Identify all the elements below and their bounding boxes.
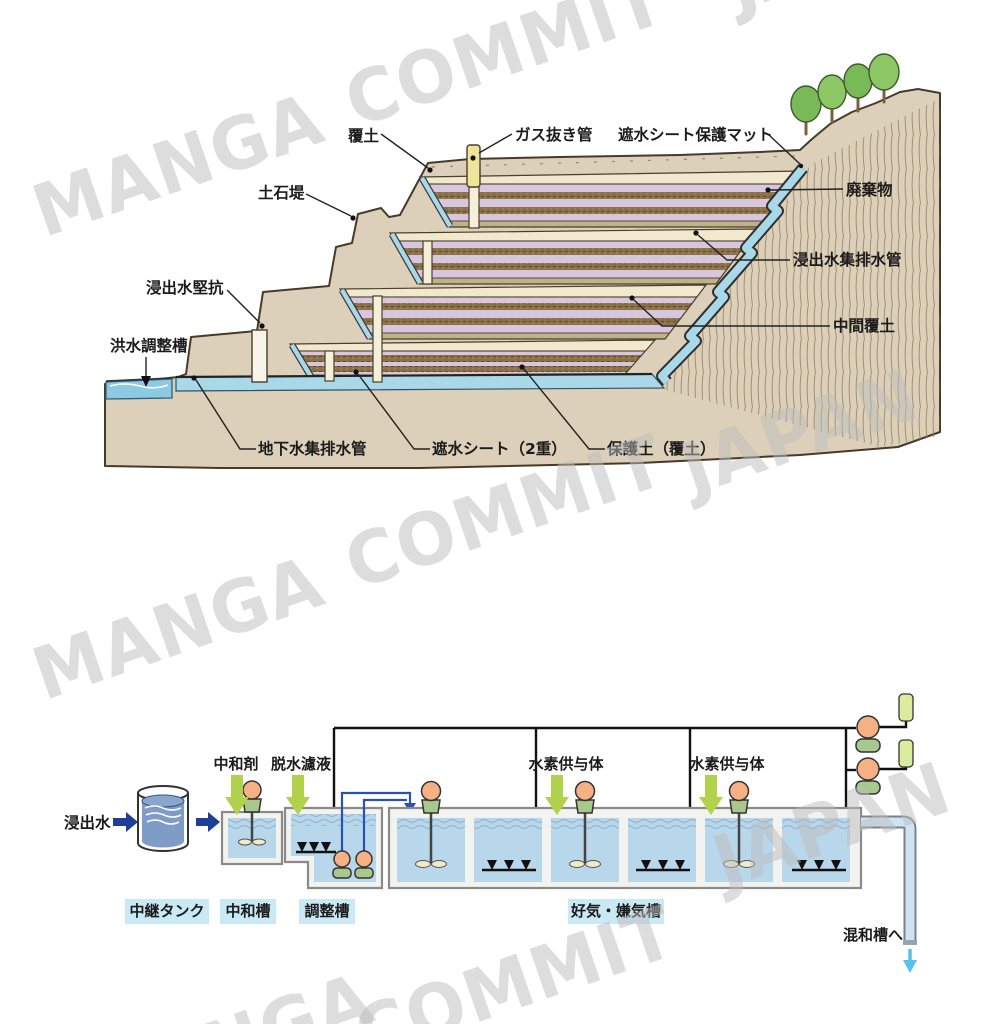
mixer-operator-head — [243, 781, 261, 799]
label-cover-soil: 覆土 — [348, 126, 380, 145]
tag-neutralization-tank: 中和槽 — [225, 902, 270, 920]
label-to-mixing-tank: 混和槽へ — [843, 926, 903, 944]
flood-control-channel — [106, 378, 172, 399]
blower-2 — [856, 758, 880, 794]
label-groundwater-collection-pipe: 地下水集排水管 — [258, 439, 367, 458]
page: 覆土 ガス抜き管 遮水シート保護マット 土石堤 廃棄物 浸出水集排水管 中間覆土… — [0, 0, 992, 1024]
gas-vent-pipe — [467, 145, 480, 187]
tag-aerobic-anaerobic-tank: 好気・嫌気槽 — [570, 902, 661, 920]
label-intermediate-cover-soil: 中間覆土 — [833, 316, 896, 335]
pump-2-body — [355, 868, 373, 878]
blower-1 — [856, 716, 880, 752]
label-leachate-shaft: 浸出水堅抗 — [146, 278, 224, 297]
label-influent: 浸出水 — [64, 813, 111, 832]
tag-relay-tank: 中継タンク — [129, 902, 204, 920]
label-liner-protection-mat: 遮水シート保護マット — [618, 125, 773, 144]
label-earth-stone-embankment: 土石堤 — [258, 183, 305, 202]
aerobic-anaerobic-tanks — [389, 782, 861, 889]
leachate-treatment-flow-diagram: 浸出水 — [0, 512, 992, 1024]
influent-arrow — [113, 812, 138, 832]
base-liner — [176, 374, 664, 391]
waste-cell-1 — [400, 171, 820, 227]
pump-1-head — [334, 851, 350, 867]
transfer-arrow — [196, 812, 220, 832]
outflow-arrow — [903, 949, 917, 973]
leachate-shaft — [252, 330, 267, 382]
label-flood-control-tank: 洪水調整槽 — [110, 336, 188, 355]
label-hydrogen-donor-1: 水素供与体 — [528, 755, 604, 773]
label-neutralizer: 中和剤 — [213, 755, 258, 773]
dosing-device-2 — [899, 740, 913, 767]
label-leachate-collection-pipe: 浸出水集排水管 — [793, 250, 902, 269]
label-waste: 廃棄物 — [846, 180, 893, 199]
label-impermeable-sheet-double: 遮水シート（2重） — [432, 439, 567, 458]
pump-2-head — [356, 851, 372, 867]
label-protective-soil-cover: 保護土（覆土） — [606, 439, 716, 458]
tank-tags: 中継タンク 中和槽 調整槽 好気・嫌気槽 — [125, 899, 664, 924]
pump-1-body — [333, 868, 351, 878]
label-gas-vent-pipe: ガス抜き管 — [515, 125, 593, 144]
dosing-device-1 — [899, 694, 913, 721]
label-dewatering-filtrate: 脱水濾液 — [271, 755, 332, 773]
landfill-cross-section-diagram: 覆土 ガス抜き管 遮水シート保護マット 土石堤 廃棄物 浸出水集排水管 中間覆土… — [0, 0, 992, 512]
tag-equalization-tank: 調整槽 — [304, 902, 349, 920]
label-hydrogen-donor-2: 水素供与体 — [689, 755, 765, 773]
relay-tank — [138, 786, 188, 851]
